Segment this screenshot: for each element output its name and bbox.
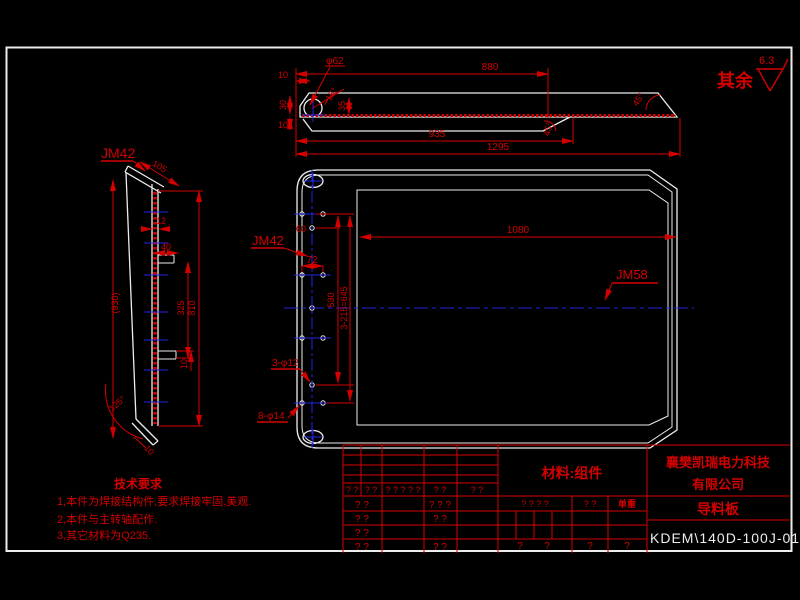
bottom-row-cell: ? (587, 541, 593, 552)
tech-req-item-2: 2,本件与主转轴配作. (57, 512, 157, 526)
bottom-row-cell: ? (517, 541, 523, 552)
top-view-outline (300, 93, 677, 131)
cad-drawing: φ62 880 10 30 10 35 15° 935 1295 45° 45° (0, 0, 800, 600)
surface-finish-prefix: 其余 (717, 70, 754, 91)
main-view: 60 72 530 3-215=645 1080 3-φ12 8-φ14 JM4… (251, 170, 694, 448)
unit-weight-label: 单重 (618, 498, 636, 509)
dim-645: 3-215=645 (339, 286, 349, 329)
top-view: φ62 880 10 30 10 35 15° 935 1295 45° 45° (278, 56, 680, 157)
revision-table: ? ? ? ? ? ? ? ? ? ? ? ? ? ? ? ? ? ? ? ? … (346, 485, 484, 553)
rev-cell: ? ? (355, 542, 369, 553)
dim-530: 530 (326, 292, 336, 307)
rev-cell: ? ? (433, 542, 447, 553)
surface-finish: 其余 6.3 (717, 55, 788, 91)
dim-1295: 1295 (487, 142, 510, 153)
left-view: JM42 105 12 40 10 (930) 325 810 125° 10 (101, 145, 203, 457)
main-view-outline (297, 170, 677, 448)
dim-10-foot: 10 (142, 443, 156, 457)
title-block: ? ? ? ? ? ? ? ? ? ? ? ? ? ? ? ? ? ? ? ? … (343, 445, 800, 553)
company-name-line1: 襄樊凯瑞电力科技 (665, 455, 771, 470)
dim-angle-45-notch: 45° (541, 121, 555, 137)
dim-1080: 1080 (507, 225, 530, 236)
dim-12: 12 (156, 216, 166, 226)
rev-header-cell: ? ? ? ? ? (385, 485, 420, 495)
label-holes-3-phi12: 3-φ12 (272, 358, 299, 369)
sign-row-cell: ? ? ? ? (521, 499, 549, 509)
rev-header-cell: ? ? (471, 485, 484, 495)
rev-cell: ? ? (355, 514, 369, 525)
dim-60: 60 (296, 224, 306, 234)
rev-cell: ? ? ? (429, 500, 452, 511)
rev-cell: ? ? (355, 528, 369, 539)
dim-35: 35 (337, 101, 347, 111)
weld-label-jm58: JM58 (616, 267, 648, 282)
bottom-row-cell: ? (624, 541, 630, 552)
rev-header-cell: ? ? (434, 485, 447, 495)
dim-810: 810 (187, 300, 197, 315)
surface-finish-value: 6.3 (759, 55, 774, 67)
part-name: 导料板 (697, 501, 740, 517)
dim-30: 30 (278, 100, 288, 110)
company-name-line2: 有限公司 (692, 477, 744, 492)
weld-label-jm42-left: JM42 (101, 145, 135, 161)
top-view-dimension-lines (290, 66, 680, 157)
rev-header-cell: ? ? (365, 485, 378, 495)
tech-req-item-3: 3,其它材料为Q235. (57, 528, 151, 542)
drawing-number: KDEM\140D-100J-01 (650, 530, 800, 546)
rev-cell: ? ? (355, 500, 369, 511)
dim-40: 40 (161, 242, 171, 252)
dim-phi62: φ62 (326, 56, 344, 67)
material-label: 材料:组件 (542, 465, 603, 481)
sign-row-cell: ? ? (584, 499, 597, 509)
dim-10-top: 10 (278, 70, 288, 80)
bottom-row-cell: ? (544, 541, 550, 552)
weld-label-jm42-main: JM42 (252, 233, 284, 248)
dim-10-tab: 10 (179, 359, 189, 369)
cad-drawing-viewport: φ62 880 10 30 10 35 15° 935 1295 45° 45° (0, 0, 800, 600)
label-holes-8-phi14: 8-φ14 (258, 411, 285, 422)
dim-880: 880 (482, 62, 499, 73)
rev-cell: ? ? (433, 514, 447, 525)
dim-72: 72 (306, 255, 318, 266)
left-view-outline (125, 166, 176, 445)
main-view-dimension-lines (251, 214, 676, 422)
dim-10-bottom: 10 (278, 120, 288, 130)
tech-req-item-1: 1,本件为焊接结构件,要求焊接牢固,美观. (57, 494, 251, 508)
dim-105: 105 (151, 158, 169, 174)
dim-325: 325 (176, 300, 186, 315)
dim-angle-125: 125° (107, 394, 128, 414)
rev-header-cell: ? ? (346, 485, 359, 495)
dim-935: 935 (429, 129, 446, 140)
technical-requirements: 技术要求 1,本件为焊接结构件,要求焊接牢固,美观. 2,本件与主转轴配作. 3… (57, 476, 251, 542)
tech-req-title: 技术要求 (114, 476, 163, 491)
dim-930: (930) (110, 292, 120, 313)
